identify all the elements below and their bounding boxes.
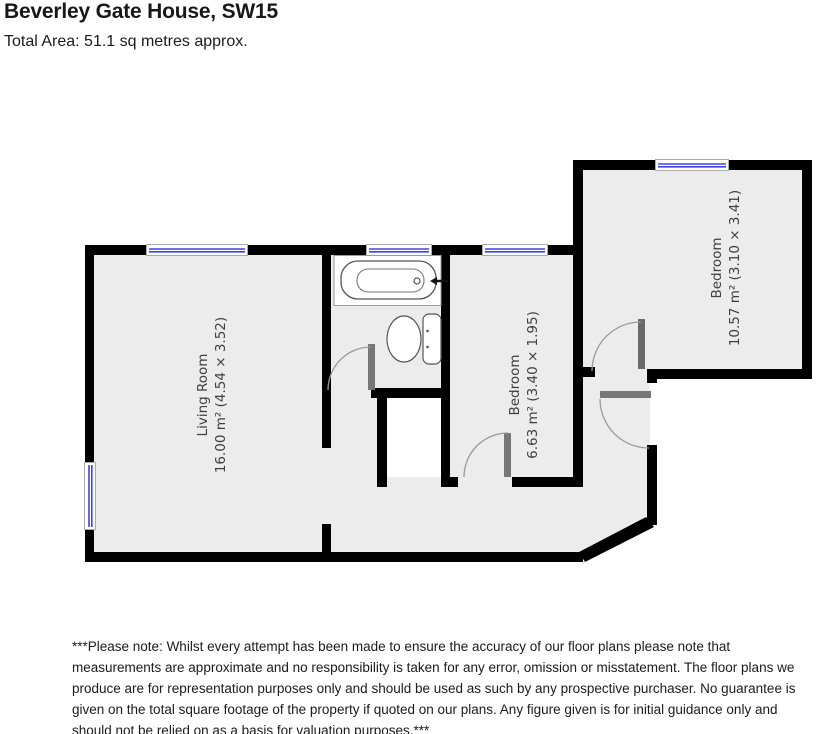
floor-plan-drawing bbox=[0, 0, 830, 620]
room-dimensions: 16.00 m² (4.54 × 3.52) bbox=[212, 285, 230, 505]
room-label-living-room: Living Room 16.00 m² (4.54 × 3.52) bbox=[194, 285, 232, 505]
room-dimensions: 6.63 m² (3.40 × 1.95) bbox=[524, 275, 542, 495]
room-label-bedroom-right: Bedroom 10.57 m² (3.10 × 3.41) bbox=[708, 158, 746, 378]
window-symbol bbox=[85, 463, 96, 530]
void-shaft bbox=[387, 398, 441, 477]
room-name: Bedroom bbox=[506, 275, 524, 495]
window-symbol bbox=[367, 245, 432, 256]
window-symbol bbox=[483, 245, 548, 256]
bathtub-symbol bbox=[334, 256, 448, 306]
disclaimer-text: ***Please note: Whilst every attempt has… bbox=[72, 636, 806, 734]
floor-plan: Living Room 16.00 m² (4.54 × 3.52) Bedro… bbox=[0, 0, 830, 620]
room-name: Bedroom bbox=[708, 158, 726, 378]
toilet-symbol bbox=[387, 314, 441, 364]
room-name: Living Room bbox=[194, 285, 212, 505]
room-dimensions: 10.57 m² (3.10 × 3.41) bbox=[726, 158, 744, 378]
window-symbol bbox=[147, 245, 248, 256]
room-label-bedroom-middle: Bedroom 6.63 m² (3.40 × 1.95) bbox=[506, 275, 544, 495]
floorplan-page: Beverley Gate House, SW15 Total Area: 51… bbox=[0, 0, 830, 734]
